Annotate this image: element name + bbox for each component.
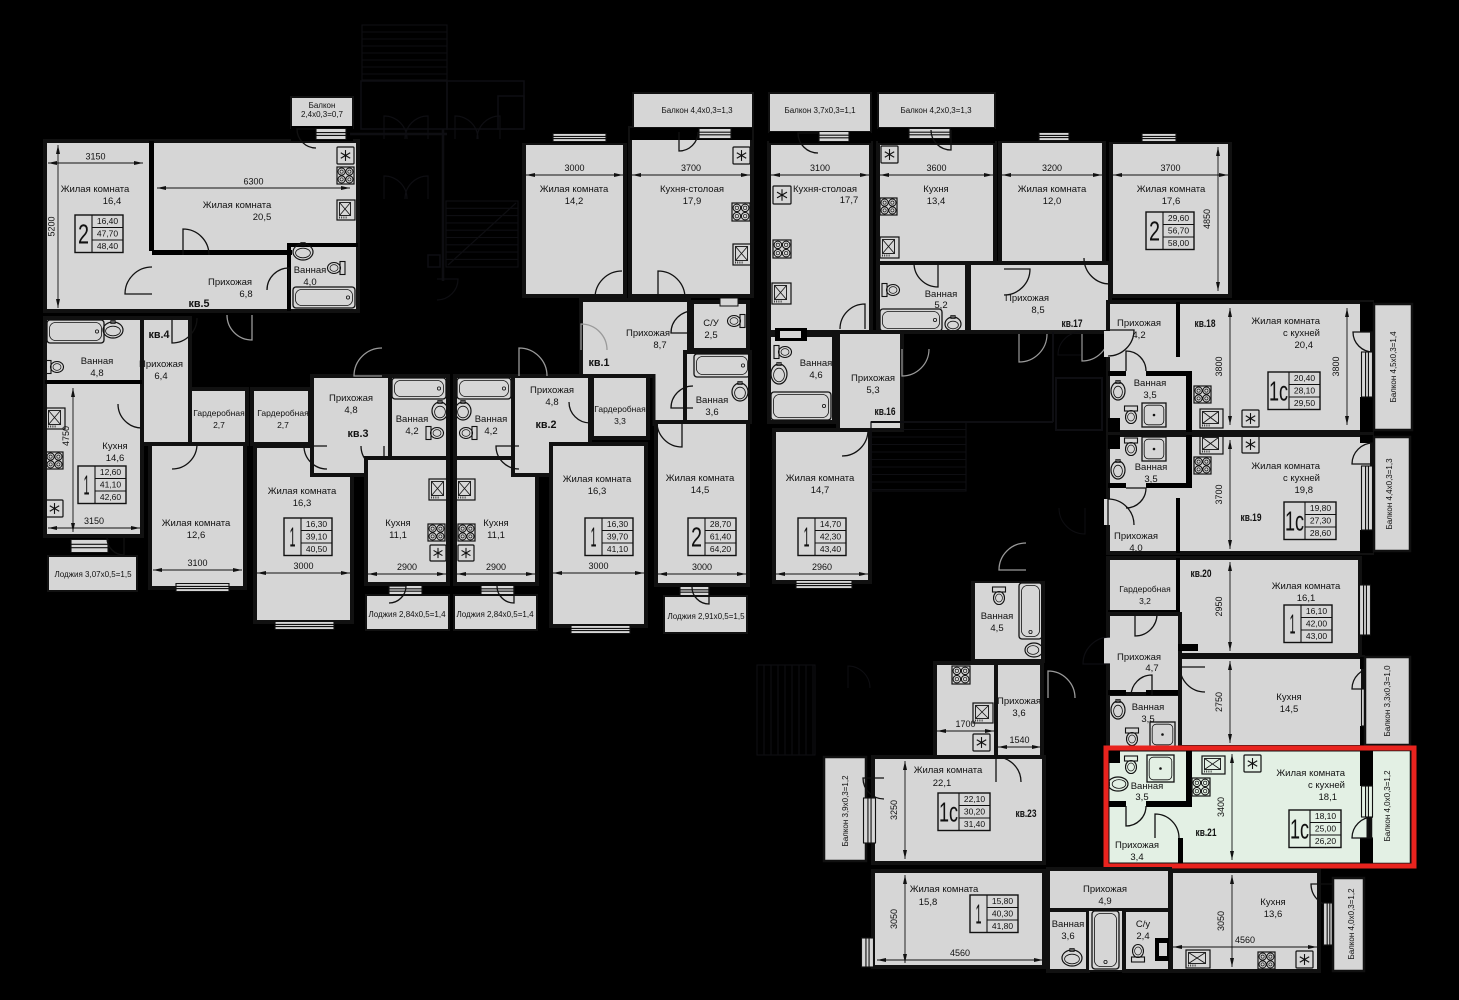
svg-text:Жилая комната: Жилая комната	[1018, 184, 1087, 195]
svg-text:Прихожая: Прихожая	[626, 328, 670, 339]
svg-text:25,00: 25,00	[1315, 824, 1337, 834]
svg-text:Жилая комната: Жилая комната	[786, 473, 855, 484]
svg-text:кв.1: кв.1	[589, 357, 610, 369]
svg-text:15,8: 15,8	[919, 897, 938, 908]
svg-text:кв.5: кв.5	[189, 298, 210, 310]
svg-text:14,2: 14,2	[565, 196, 584, 207]
svg-text:3050: 3050	[889, 909, 899, 929]
svg-text:4,2: 4,2	[405, 426, 418, 437]
svg-text:1: 1	[804, 522, 810, 553]
svg-text:30,20: 30,20	[964, 807, 986, 817]
svg-text:Балкон 4,0х0,3=1,2: Балкон 4,0х0,3=1,2	[1383, 770, 1392, 842]
svg-text:кв.2: кв.2	[536, 419, 557, 431]
svg-text:Прихожая: Прихожая	[1083, 884, 1127, 895]
svg-text:16,3: 16,3	[588, 486, 607, 497]
svg-text:Ванная: Ванная	[396, 414, 429, 425]
svg-text:2: 2	[691, 522, 702, 553]
svg-text:Ванная: Ванная	[800, 358, 833, 369]
svg-text:Жилая комната: Жилая комната	[1272, 581, 1341, 592]
svg-text:3,5: 3,5	[1141, 714, 1154, 725]
svg-text:3600: 3600	[926, 163, 946, 173]
svg-text:1с: 1с	[939, 797, 958, 828]
svg-text:Балкон 4,2х0,3=1,3: Балкон 4,2х0,3=1,3	[900, 106, 972, 115]
svg-text:Жилая комната: Жилая комната	[203, 200, 272, 211]
svg-text:4,8: 4,8	[344, 405, 357, 416]
svg-text:кв.16: кв.16	[875, 406, 896, 418]
svg-text:4,7: 4,7	[1145, 663, 1158, 674]
svg-text:41,10: 41,10	[607, 544, 629, 554]
svg-text:Прихожая: Прихожая	[208, 277, 252, 288]
svg-text:42,60: 42,60	[100, 492, 122, 502]
svg-text:Кухня: Кухня	[1276, 692, 1301, 703]
svg-text:Ванная: Ванная	[81, 356, 114, 367]
svg-text:Лоджия 3,07х0,5=1,5: Лоджия 3,07х0,5=1,5	[54, 570, 132, 579]
svg-text:3,5: 3,5	[1143, 390, 1156, 401]
svg-text:2900: 2900	[397, 562, 417, 572]
svg-text:3000: 3000	[293, 561, 313, 571]
svg-text:42,30: 42,30	[820, 532, 842, 542]
svg-text:3200: 3200	[1042, 163, 1062, 173]
svg-text:Балкон 4,0х0,3=1,2: Балкон 4,0х0,3=1,2	[1347, 888, 1356, 960]
svg-text:6,8: 6,8	[239, 289, 252, 300]
svg-text:3,3: 3,3	[614, 416, 626, 426]
svg-text:Гардеробная: Гардеробная	[193, 408, 245, 418]
svg-text:5,3: 5,3	[866, 385, 879, 396]
svg-text:39,70: 39,70	[607, 532, 629, 542]
svg-text:16,40: 16,40	[97, 216, 119, 226]
svg-text:1: 1	[976, 899, 982, 930]
svg-text:Прихожая: Прихожая	[851, 373, 895, 384]
svg-text:кв.23: кв.23	[1016, 808, 1037, 820]
svg-text:4,8: 4,8	[545, 397, 558, 408]
svg-text:3150: 3150	[84, 516, 104, 526]
svg-text:22,1: 22,1	[933, 778, 952, 789]
svg-text:2,7: 2,7	[277, 420, 289, 430]
svg-text:4,2: 4,2	[484, 426, 497, 437]
svg-text:Жилая комната: Жилая комната	[268, 486, 337, 497]
svg-text:кв.17: кв.17	[1062, 318, 1083, 330]
svg-text:1: 1	[84, 470, 90, 501]
svg-text:1с: 1с	[1269, 376, 1288, 407]
svg-text:47,70: 47,70	[97, 229, 119, 239]
svg-text:Жилая комната: Жилая комната	[914, 765, 983, 776]
svg-text:11,1: 11,1	[487, 530, 505, 541]
svg-text:4560: 4560	[950, 948, 970, 958]
svg-text:12,6: 12,6	[187, 530, 206, 541]
svg-text:Ванная: Ванная	[1052, 919, 1085, 930]
svg-text:Ванная: Ванная	[1134, 378, 1167, 389]
svg-text:Ванная: Ванная	[925, 289, 958, 300]
svg-text:Ванная: Ванная	[981, 611, 1014, 622]
svg-text:28,70: 28,70	[710, 519, 732, 529]
svg-text:кв.18: кв.18	[1195, 318, 1216, 330]
svg-text:4850: 4850	[1202, 209, 1212, 229]
svg-text:Балкон 4,4х0,3=1,3: Балкон 4,4х0,3=1,3	[1385, 458, 1394, 530]
svg-text:14,5: 14,5	[1280, 704, 1299, 715]
svg-text:2960: 2960	[812, 562, 832, 572]
svg-text:6300: 6300	[243, 177, 263, 187]
svg-text:3800: 3800	[1214, 356, 1224, 376]
svg-text:14,70: 14,70	[820, 519, 842, 529]
svg-text:20,5: 20,5	[253, 212, 272, 223]
svg-text:3,2: 3,2	[1139, 596, 1151, 606]
svg-text:42,00: 42,00	[1306, 619, 1328, 629]
svg-text:40,50: 40,50	[306, 544, 328, 554]
svg-text:Прихожая: Прихожая	[1114, 531, 1158, 542]
svg-text:Балкон 3,7х0,3=1,1: Балкон 3,7х0,3=1,1	[784, 106, 856, 115]
svg-text:12,0: 12,0	[1043, 196, 1062, 207]
svg-text:Гардеробная: Гардеробная	[594, 404, 646, 414]
svg-text:20,40: 20,40	[1294, 373, 1316, 383]
svg-text:Балкон 3,3х0,3=1,0: Балкон 3,3х0,3=1,0	[1383, 665, 1392, 737]
svg-text:43,00: 43,00	[1306, 631, 1328, 641]
svg-text:Жилая комната: Жилая комната	[666, 473, 735, 484]
svg-text:4,6: 4,6	[809, 370, 822, 381]
svg-text:3,6: 3,6	[1061, 931, 1074, 942]
svg-text:Балкон 4,4х0,3=1,3: Балкон 4,4х0,3=1,3	[661, 106, 733, 115]
svg-text:Ванная: Ванная	[475, 414, 508, 425]
svg-text:3,6: 3,6	[1012, 708, 1025, 719]
svg-text:3250: 3250	[889, 800, 899, 820]
svg-text:14,5: 14,5	[691, 485, 710, 496]
svg-text:Кухня-столоая: Кухня-столоая	[660, 184, 724, 195]
svg-text:14,6: 14,6	[106, 453, 125, 464]
svg-text:15,80: 15,80	[992, 896, 1014, 906]
svg-text:13,4: 13,4	[927, 196, 946, 207]
svg-text:2: 2	[1149, 216, 1160, 247]
svg-text:Жилая комната: Жилая комната	[162, 518, 231, 529]
svg-text:17,9: 17,9	[683, 196, 702, 207]
svg-text:Гардеробная: Гардеробная	[1119, 584, 1171, 594]
svg-text:41,80: 41,80	[992, 921, 1014, 931]
svg-text:Кухня: Кухня	[1260, 897, 1285, 908]
svg-text:2750: 2750	[1214, 692, 1224, 712]
svg-text:Кухня: Кухня	[385, 518, 410, 529]
svg-text:3100: 3100	[187, 558, 207, 568]
svg-text:39,10: 39,10	[306, 532, 328, 542]
svg-text:17,6: 17,6	[1162, 196, 1181, 207]
svg-text:Прихожая: Прихожая	[530, 385, 574, 396]
svg-text:Жилая комната: Жилая комната	[540, 184, 609, 195]
svg-text:кв.3: кв.3	[348, 428, 369, 440]
svg-text:16,30: 16,30	[306, 519, 328, 529]
svg-text:Жилая комната: Жилая комната	[1137, 184, 1206, 195]
svg-text:1: 1	[591, 522, 597, 553]
svg-text:16,30: 16,30	[607, 519, 629, 529]
svg-text:4,5: 4,5	[990, 623, 1003, 634]
svg-text:4,9: 4,9	[1098, 896, 1111, 907]
svg-text:с кухней: с кухней	[1308, 780, 1345, 791]
svg-text:28,60: 28,60	[1310, 528, 1332, 538]
svg-text:19,80: 19,80	[1310, 503, 1332, 513]
svg-text:16,10: 16,10	[1306, 606, 1328, 616]
svg-text:3,5: 3,5	[1135, 792, 1148, 803]
svg-text:3700: 3700	[681, 163, 701, 173]
svg-text:3,5: 3,5	[1144, 474, 1157, 485]
svg-text:Прихожая: Прихожая	[997, 696, 1041, 707]
svg-text:Кухня: Кухня	[923, 184, 948, 195]
svg-text:кв.19: кв.19	[1241, 512, 1262, 524]
svg-text:Балкон: Балкон	[309, 101, 336, 110]
svg-text:58,00: 58,00	[1168, 238, 1190, 248]
svg-text:2900: 2900	[486, 562, 506, 572]
svg-text:4560: 4560	[1235, 935, 1255, 945]
svg-text:с кухней: с кухней	[1283, 473, 1320, 484]
svg-text:20,4: 20,4	[1295, 340, 1314, 351]
svg-text:16,4: 16,4	[103, 196, 122, 207]
svg-text:Жилая комната: Жилая комната	[1251, 461, 1320, 472]
svg-text:3700: 3700	[1160, 163, 1180, 173]
svg-text:2950: 2950	[1214, 596, 1224, 616]
svg-text:2,7: 2,7	[213, 420, 225, 430]
svg-text:Ванная: Ванная	[1135, 462, 1168, 473]
svg-text:64,20: 64,20	[710, 544, 732, 554]
svg-text:1с: 1с	[1290, 814, 1309, 845]
svg-text:3000: 3000	[564, 163, 584, 173]
svg-text:4,8: 4,8	[90, 368, 103, 379]
svg-text:с кухней: с кухней	[1283, 328, 1320, 339]
svg-text:11,1: 11,1	[389, 530, 407, 541]
svg-text:3,6: 3,6	[705, 407, 718, 418]
svg-text:С/у: С/у	[1136, 919, 1151, 930]
svg-text:4,0: 4,0	[1129, 543, 1142, 554]
svg-text:8,5: 8,5	[1031, 305, 1044, 316]
svg-text:Жилая комната: Жилая комната	[910, 884, 979, 895]
svg-text:Жилая комната: Жилая комната	[1276, 768, 1345, 779]
svg-text:16,1: 16,1	[1297, 593, 1316, 604]
svg-text:56,70: 56,70	[1168, 226, 1190, 236]
svg-text:Прихожая: Прихожая	[329, 393, 373, 404]
svg-text:3400: 3400	[1216, 797, 1226, 817]
svg-text:1700: 1700	[955, 719, 975, 729]
svg-text:2,4: 2,4	[1136, 931, 1149, 942]
svg-text:31,40: 31,40	[964, 819, 986, 829]
svg-text:3050: 3050	[1216, 911, 1226, 931]
svg-text:1: 1	[1290, 609, 1296, 640]
svg-text:3,4: 3,4	[1130, 852, 1143, 863]
svg-text:5,2: 5,2	[934, 300, 947, 311]
svg-text:Гардеробная: Гардеробная	[257, 408, 309, 418]
svg-text:13,6: 13,6	[1264, 909, 1283, 920]
svg-text:1с: 1с	[1285, 506, 1304, 537]
svg-text:Балкон 3,9х0,3=1,2: Балкон 3,9х0,3=1,2	[841, 775, 850, 847]
svg-text:Ванная: Ванная	[696, 395, 729, 406]
svg-text:43,40: 43,40	[820, 544, 842, 554]
svg-text:22,10: 22,10	[964, 794, 986, 804]
svg-text:41,10: 41,10	[100, 480, 122, 490]
svg-text:3100: 3100	[810, 163, 830, 173]
svg-text:29,60: 29,60	[1168, 213, 1190, 223]
svg-text:26,20: 26,20	[1315, 836, 1337, 846]
svg-text:14,7: 14,7	[811, 485, 830, 496]
svg-text:Прихожая: Прихожая	[1117, 318, 1161, 329]
svg-text:Прихожая: Прихожая	[139, 359, 183, 370]
svg-text:Ванная: Ванная	[1131, 781, 1164, 792]
svg-text:Жилая комната: Жилая комната	[61, 184, 130, 195]
svg-text:Прихожая: Прихожая	[1115, 840, 1159, 851]
svg-text:29,50: 29,50	[1294, 398, 1316, 408]
svg-text:18,10: 18,10	[1315, 811, 1337, 821]
svg-text:2,4х0,3=0,7: 2,4х0,3=0,7	[301, 110, 344, 119]
svg-text:2,5: 2,5	[704, 330, 717, 341]
svg-text:Ванная: Ванная	[1132, 702, 1165, 713]
svg-text:40,30: 40,30	[992, 909, 1014, 919]
svg-text:28,10: 28,10	[1294, 386, 1316, 396]
svg-text:Кухня: Кухня	[483, 518, 508, 529]
svg-text:кв.4: кв.4	[149, 329, 171, 341]
svg-text:Лоджия 2,91х0,5=1,5: Лоджия 2,91х0,5=1,5	[667, 612, 745, 621]
svg-text:12,60: 12,60	[100, 467, 122, 477]
svg-text:3000: 3000	[588, 561, 608, 571]
svg-text:Кухня-столоая: Кухня-столоая	[793, 184, 857, 195]
svg-text:1540: 1540	[1009, 735, 1029, 745]
svg-text:Прихожая: Прихожая	[1005, 293, 1049, 304]
svg-text:19,8: 19,8	[1295, 485, 1314, 496]
svg-text:Балкон 4,5х0,3=1,4: Балкон 4,5х0,3=1,4	[1389, 331, 1398, 403]
svg-text:3150: 3150	[85, 152, 105, 162]
svg-text:27,30: 27,30	[1310, 516, 1332, 526]
svg-text:кв.20: кв.20	[1191, 568, 1212, 580]
svg-text:3000: 3000	[692, 562, 712, 572]
svg-text:Лоджия 2,84х0,5=1,4: Лоджия 2,84х0,5=1,4	[368, 610, 446, 619]
svg-text:61,40: 61,40	[710, 532, 732, 542]
svg-text:Лоджия 2,84х0,5=1,4: Лоджия 2,84х0,5=1,4	[456, 610, 534, 619]
svg-text:3800: 3800	[1331, 356, 1341, 376]
svg-text:8,7: 8,7	[653, 340, 666, 351]
svg-text:С/У: С/У	[703, 318, 720, 329]
svg-text:Жилая комната: Жилая комната	[1251, 316, 1320, 327]
svg-text:3700: 3700	[1214, 484, 1224, 504]
svg-text:18,1: 18,1	[1319, 792, 1338, 803]
svg-text:16,3: 16,3	[293, 498, 312, 509]
svg-text:48,40: 48,40	[97, 241, 119, 251]
svg-text:2: 2	[78, 219, 89, 250]
svg-text:Ванная: Ванная	[294, 265, 327, 276]
svg-text:6,4: 6,4	[154, 371, 167, 382]
svg-text:Жилая комната: Жилая комната	[563, 474, 632, 485]
svg-text:Кухня: Кухня	[102, 441, 127, 452]
svg-text:1: 1	[290, 522, 296, 553]
svg-text:5200: 5200	[47, 216, 57, 236]
svg-text:17,7: 17,7	[840, 195, 859, 206]
svg-text:Прихожая: Прихожая	[1117, 652, 1161, 663]
svg-text:кв.21: кв.21	[1196, 827, 1217, 839]
